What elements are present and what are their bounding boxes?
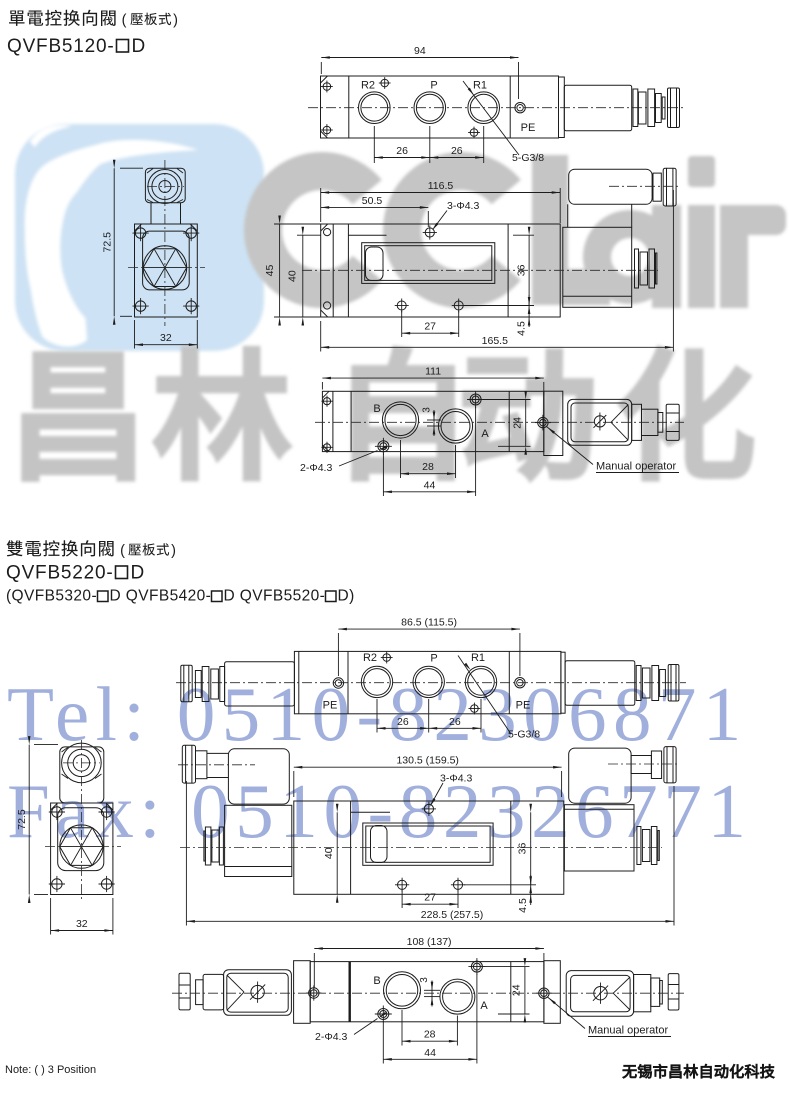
svg-text:B: B	[373, 975, 380, 987]
svg-text:P: P	[430, 653, 437, 665]
svg-text:94: 94	[414, 45, 426, 57]
svg-text:108 (137): 108 (137)	[407, 936, 452, 948]
svg-text:2-Φ4.3: 2-Φ4.3	[300, 462, 332, 474]
svg-text:A: A	[481, 428, 489, 440]
svg-text:26: 26	[451, 145, 463, 157]
svg-text:228.5 (257.5): 228.5 (257.5)	[421, 909, 483, 921]
svg-text:QVFB5220-: QVFB5220-	[6, 563, 114, 584]
svg-text:27: 27	[424, 321, 436, 333]
svg-text:72.5: 72.5	[16, 809, 28, 830]
svg-text:4.5: 4.5	[516, 321, 528, 336]
svg-text:Note: ( ) 3 Position: Note: ( ) 3 Position	[5, 1064, 96, 1076]
svg-text:D QVFB5420-: D QVFB5420-	[110, 588, 212, 605]
svg-text:QVFB5120-: QVFB5120-	[7, 36, 115, 57]
svg-text:): )	[171, 543, 176, 559]
svg-text:32: 32	[76, 918, 88, 930]
svg-text:D QVFB5520-: D QVFB5520-	[224, 588, 326, 605]
svg-text:45: 45	[264, 265, 276, 277]
svg-text:86.5 (115.5): 86.5 (115.5)	[401, 617, 457, 629]
svg-text:P: P	[430, 80, 437, 92]
svg-text:26: 26	[449, 716, 461, 728]
svg-text:5-G3/8: 5-G3/8	[508, 729, 540, 741]
svg-text:(: (	[120, 543, 125, 559]
svg-text:40: 40	[323, 847, 335, 859]
svg-text:26: 26	[396, 145, 408, 157]
svg-text:(: (	[122, 13, 127, 29]
svg-text:3-Φ4.3: 3-Φ4.3	[447, 200, 479, 212]
svg-text:R1: R1	[471, 652, 485, 664]
svg-text:72.5: 72.5	[101, 232, 113, 253]
svg-text:Fax: 0510-82326771: Fax: 0510-82326771	[7, 768, 752, 854]
svg-text:116.5: 116.5	[428, 180, 454, 192]
svg-text:4.5: 4.5	[517, 898, 529, 913]
svg-text:A: A	[480, 1000, 488, 1012]
svg-text:3-Φ4.3: 3-Φ4.3	[440, 773, 472, 785]
svg-text:R2: R2	[361, 80, 375, 92]
svg-text:5-G3/8: 5-G3/8	[512, 152, 544, 164]
svg-text:111: 111	[425, 366, 441, 378]
svg-text:B: B	[373, 403, 380, 415]
svg-text:130.5 (159.5): 130.5 (159.5)	[396, 755, 458, 767]
svg-text:Manual operator: Manual operator	[588, 1025, 668, 1037]
svg-text:32: 32	[160, 332, 172, 344]
svg-text:28: 28	[422, 461, 434, 473]
svg-text:44: 44	[424, 479, 436, 491]
svg-text:PE: PE	[516, 700, 531, 712]
svg-text:40: 40	[287, 270, 299, 282]
svg-text:27: 27	[424, 892, 436, 904]
svg-text:(QVFB5320-: (QVFB5320-	[6, 588, 97, 605]
svg-text:28: 28	[424, 1029, 436, 1041]
svg-text:24: 24	[511, 984, 523, 996]
svg-text:): )	[173, 13, 178, 29]
svg-text:44: 44	[424, 1047, 436, 1059]
svg-text:24: 24	[512, 417, 524, 429]
svg-text:3: 3	[422, 407, 433, 413]
svg-text:D: D	[131, 563, 145, 584]
svg-text:PE: PE	[323, 700, 338, 712]
svg-text:D: D	[132, 36, 146, 57]
svg-text:R1: R1	[473, 80, 487, 92]
svg-text:R2: R2	[363, 652, 377, 664]
svg-text:2-Φ4.3: 2-Φ4.3	[315, 1031, 347, 1043]
svg-text:26: 26	[397, 716, 409, 728]
svg-text:PE: PE	[521, 122, 536, 134]
svg-text:3: 3	[419, 977, 430, 983]
svg-text:165.5: 165.5	[482, 335, 508, 347]
svg-text:50.5: 50.5	[362, 195, 383, 207]
svg-text:36: 36	[516, 843, 528, 855]
svg-text:D): D)	[338, 588, 355, 605]
svg-text:Manual operator: Manual operator	[596, 461, 676, 473]
